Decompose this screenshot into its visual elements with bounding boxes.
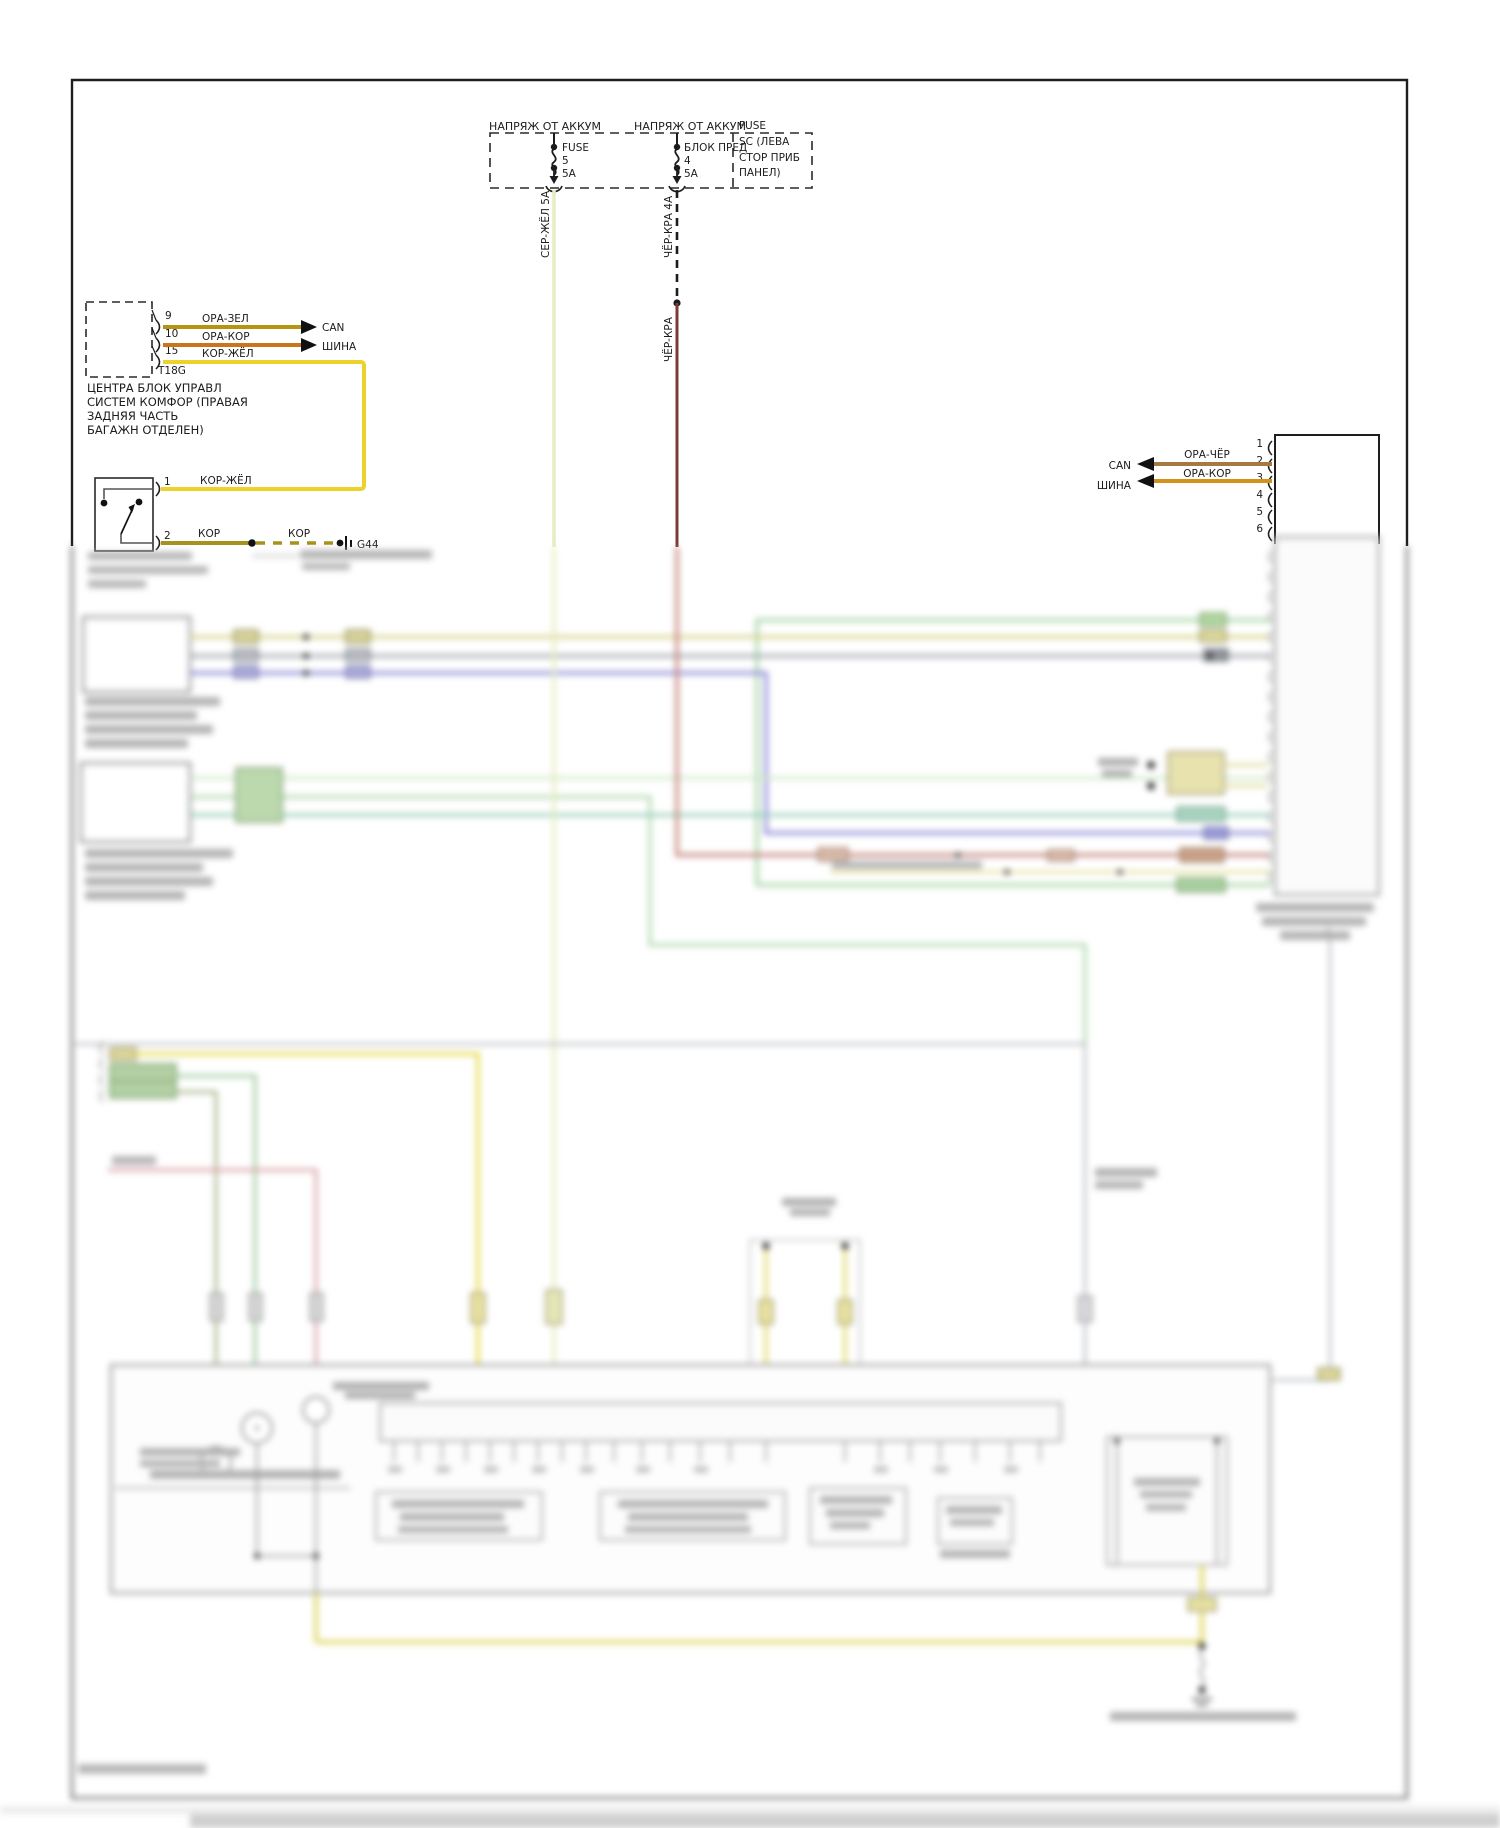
fuse1-number: 5 — [562, 155, 569, 167]
t18g-caption-line4: БАГАЖН ОТДЕЛЕН) — [87, 423, 204, 437]
scan-edge-band-dark — [190, 1814, 1500, 1828]
wire-junction-dot — [337, 540, 344, 547]
t18g-pin9-number: 9 — [165, 310, 172, 322]
schematic-canvas: НАПРЯЖ ОТ АККУМ НАПРЯЖ ОТ АККУМ FUSE 5 5… — [0, 0, 1500, 1828]
t18g-module: 9 10 15 ОРА-ЗЕЛ ОРА-КОР КОР-ЖЁЛ T18G ЦЕН… — [86, 302, 254, 437]
arrow-left-icon — [1137, 474, 1154, 488]
cher-kra-4a-label: ЧЁР-КРА 4А — [662, 195, 675, 258]
switch-pin2-number: 2 — [164, 530, 171, 542]
rconn-pin5-number: 5 — [1256, 506, 1263, 518]
pin-arc-icon — [156, 320, 160, 334]
ser-zhel-wire-label: СЕР-ЖЁЛ 5А — [539, 190, 552, 258]
pin-arc-icon — [156, 536, 160, 550]
arrow-right-icon — [301, 338, 317, 352]
pin-arc-icon — [1269, 510, 1273, 524]
bottom-terminal-icon — [1192, 1699, 1212, 1705]
fuse2-number: 4 — [684, 155, 691, 167]
rconn-wire3-color: ОРА-КОР — [1183, 468, 1231, 480]
ground-id-label: G44 — [357, 539, 379, 551]
right-connector-top: 1 2 3 4 5 6 ОРА-ЧЁР ОРА-КОР CAN ШИНА — [1097, 435, 1379, 544]
pin-arc-icon — [1269, 527, 1273, 541]
pin-arc-icon — [156, 338, 160, 352]
t18g-id: T18G — [157, 365, 186, 377]
pin-arc-column — [1269, 551, 1272, 883]
trunk-lid-switch: 1 КОР-ЖЁЛ 2 — [95, 474, 252, 551]
wire-junction-dot — [248, 539, 256, 547]
feed-label-1: НАПРЯЖ ОТ АККУМ — [489, 120, 601, 133]
fuse2-note-line2: SC (ЛЕВА — [739, 136, 790, 148]
scan-edge-band — [0, 1806, 1500, 1814]
t18g-pin9-wire-color: ОРА-ЗЕЛ — [202, 313, 249, 325]
t18g-pin10-wire-color: ОРА-КОР — [202, 331, 250, 343]
module-box-b — [81, 763, 233, 900]
t18g-caption-line2: СИСТЕМ КОМФОР (ПРАВАЯ — [87, 395, 248, 409]
fuse2-amps: 5А — [684, 168, 699, 180]
wiring-diagram-page: НАПРЯЖ ОТ АККУМ НАПРЯЖ ОТ АККУМ FUSE 5 5… — [0, 0, 1500, 1828]
t18g-pin10-number: 10 — [165, 328, 178, 340]
fuse2-note-line4: ПАНЕЛ) — [739, 167, 781, 179]
switch-pin1-wire-color: КОР-ЖЁЛ — [200, 474, 252, 487]
fuse2-name: БЛОК ПРЕД — [684, 142, 747, 154]
arrow-down-icon — [673, 176, 682, 184]
kor-wire-label-2: КОР — [288, 528, 310, 540]
rconn-pin4-number: 4 — [1256, 489, 1263, 501]
fuse1-name: FUSE — [562, 142, 589, 154]
kor-wire-label-1: КОР — [198, 528, 220, 540]
sharp-layer: НАПРЯЖ ОТ АККУМ НАПРЯЖ ОТ АККУМ FUSE 5 5… — [72, 80, 1407, 551]
bottom-left-caption — [78, 1764, 206, 1774]
far-right-drop-wire — [1272, 928, 1340, 1380]
fuse2-note-line3: СТОР ПРИБ — [739, 152, 800, 164]
fuse2-note-line1: FUSE — [739, 120, 766, 132]
fuse1-amps: 5А — [562, 168, 577, 180]
arrow-down-icon — [550, 176, 559, 184]
relay-block — [1107, 1437, 1227, 1565]
right-connector-caption — [1256, 903, 1374, 940]
can-bus-label: CAN — [322, 322, 344, 334]
switch-pin1-number: 1 — [164, 476, 171, 488]
arrow-right-icon — [301, 320, 317, 334]
shina-bus-label-right: ШИНА — [1097, 480, 1132, 492]
t18g-caption-line1: ЦЕНТРА БЛОК УПРАВЛ — [87, 381, 222, 395]
ground-symbol-icon — [346, 536, 351, 550]
rconn-wire2-color: ОРА-ЧЁР — [1184, 448, 1230, 461]
pin-arc-icon — [1269, 441, 1273, 455]
switch-arm-arrow-icon — [129, 504, 136, 513]
cher-kra-label: ЧЁР-КРА — [662, 316, 675, 362]
can-bus-label-right: CAN — [1109, 460, 1131, 472]
pin-arc-icon — [156, 482, 160, 496]
blurred-lower-diagram — [0, 537, 1500, 1828]
blurred-text-under-switch — [88, 550, 432, 588]
fuse-1: FUSE 5 5А — [546, 133, 589, 192]
bottom-control-unit — [111, 1365, 1270, 1593]
t18g-pin15-wire-color: КОР-ЖЁЛ — [202, 347, 254, 360]
feed-label-2: НАПРЯЖ ОТ АККУМ — [634, 120, 746, 133]
pin-arc-icon — [1269, 493, 1273, 507]
shina-bus-label: ШИНА — [322, 341, 357, 353]
rconn-pin6-number: 6 — [1256, 523, 1263, 535]
right-connector-blurred-body — [1256, 537, 1379, 940]
rconn-pin1-number: 1 — [1256, 438, 1263, 450]
arrow-left-icon — [1137, 457, 1154, 471]
yellow-stub-cluster — [1098, 752, 1268, 794]
t18g-caption-line3: ЗАДНЯЯ ЧАСТЬ — [87, 409, 178, 423]
